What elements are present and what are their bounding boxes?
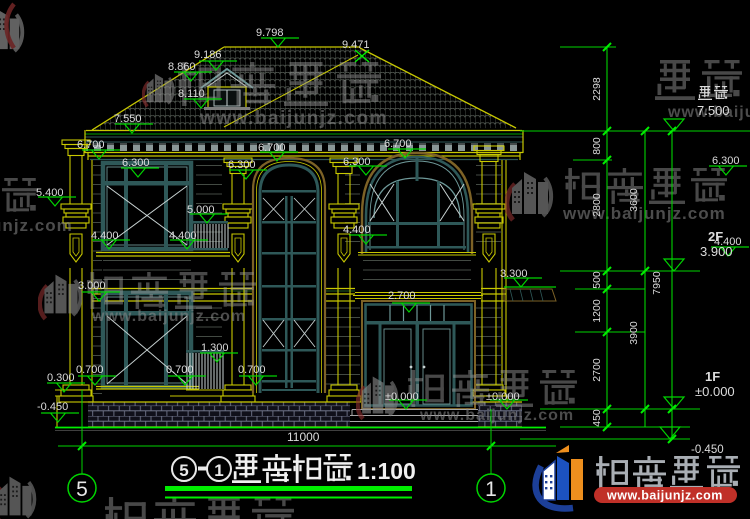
svg-text:6.300: 6.300: [228, 159, 256, 171]
svg-text:9.186: 9.186: [194, 49, 222, 61]
svg-text:6.700: 6.700: [258, 142, 286, 154]
svg-text:±0.000: ±0.000: [486, 391, 520, 403]
svg-text:2800: 2800: [591, 193, 603, 217]
svg-text:±0.000: ±0.000: [385, 391, 419, 403]
svg-text:4.400: 4.400: [343, 224, 371, 236]
svg-text:www.baijunjz.com: www.baijunjz.com: [606, 489, 723, 503]
svg-text:9.471: 9.471: [342, 39, 370, 51]
svg-text:2298: 2298: [591, 77, 603, 101]
svg-text:7.550: 7.550: [114, 113, 142, 125]
svg-text:6.300: 6.300: [712, 155, 740, 167]
svg-text:2.700: 2.700: [388, 290, 416, 302]
svg-text:1200: 1200: [591, 299, 603, 323]
svg-text:www.baijunjz.com: www.baijunjz.com: [91, 308, 246, 325]
svg-text:450: 450: [591, 409, 603, 427]
svg-text:1F: 1F: [705, 369, 720, 384]
svg-text:5.400: 5.400: [36, 187, 64, 199]
svg-text:0.300: 0.300: [47, 372, 75, 384]
svg-text:5: 5: [179, 461, 188, 480]
svg-text:800: 800: [591, 137, 603, 155]
svg-text:4.400: 4.400: [169, 230, 197, 242]
svg-text:500: 500: [591, 271, 603, 289]
svg-text:1.300: 1.300: [201, 342, 229, 354]
svg-text:3.900: 3.900: [700, 244, 733, 259]
svg-text:9.798: 9.798: [256, 27, 284, 39]
svg-text:3600: 3600: [628, 188, 640, 212]
svg-text:7.500: 7.500: [697, 103, 730, 118]
svg-text:2F: 2F: [708, 229, 723, 244]
svg-text:4.400: 4.400: [91, 230, 119, 242]
svg-text:6.700: 6.700: [77, 139, 105, 151]
svg-text:-0.450: -0.450: [691, 444, 724, 456]
svg-text:www.baijunjz.com: www.baijunjz.com: [0, 216, 73, 235]
svg-text:5: 5: [76, 478, 88, 501]
svg-text:8.860: 8.860: [168, 61, 196, 73]
svg-text:3.300: 3.300: [500, 268, 528, 280]
svg-text:±0.000: ±0.000: [695, 384, 735, 399]
svg-text:6.300: 6.300: [122, 157, 150, 169]
svg-text:www.baijunjz.com: www.baijunjz.com: [199, 108, 388, 129]
svg-text:-0.450: -0.450: [37, 401, 68, 413]
svg-text:3.000: 3.000: [78, 280, 106, 292]
svg-text:0.700: 0.700: [166, 364, 194, 376]
svg-text:0.700: 0.700: [238, 364, 266, 376]
svg-text:11000: 11000: [287, 430, 320, 444]
svg-text:3900: 3900: [628, 321, 640, 345]
svg-text:7950: 7950: [651, 271, 663, 295]
svg-text:1:100: 1:100: [357, 458, 416, 484]
svg-text:1: 1: [214, 461, 223, 480]
svg-text:6.300: 6.300: [343, 156, 371, 168]
svg-text:www.baijunjz.com: www.baijunjz.com: [562, 204, 726, 223]
svg-text:5.000: 5.000: [187, 204, 215, 216]
svg-text:2700: 2700: [591, 358, 603, 382]
svg-text:1: 1: [485, 478, 497, 501]
svg-text:0.700: 0.700: [76, 364, 104, 376]
svg-text:6.700: 6.700: [384, 138, 412, 150]
svg-text:8.110: 8.110: [178, 88, 205, 100]
